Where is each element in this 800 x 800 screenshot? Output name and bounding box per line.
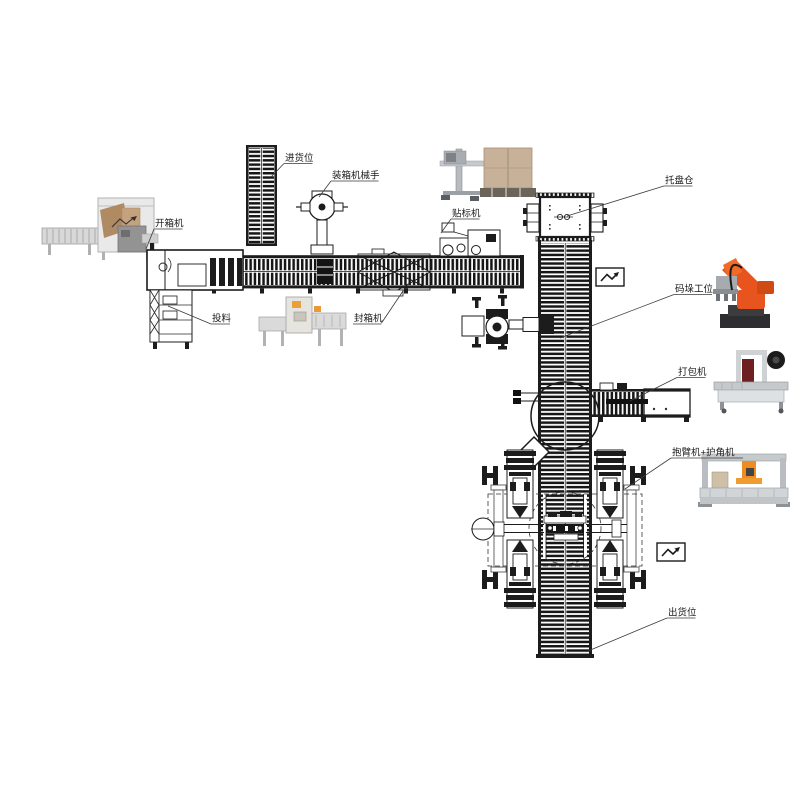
palletizing-robot-photo <box>713 258 774 328</box>
clamp-tower <box>594 450 626 518</box>
infeed-conveyor <box>246 145 277 246</box>
corner-bracket <box>630 466 646 485</box>
case-erector-photo <box>42 198 158 260</box>
packaging-line-diagram: 进货位 装箱机械手 开箱机 投料 封箱机 贴标机 托盘仓 码垛工位 打包机 <box>0 0 800 800</box>
pallet-magazine-drawing <box>523 193 607 241</box>
label-infeed: 进货位 <box>271 152 314 177</box>
label-case-sealer-text: 封箱机 <box>354 313 383 325</box>
corner-bracket <box>482 570 498 589</box>
label-outfeed: 出货位 <box>588 607 697 652</box>
flow-break-symbol <box>596 268 624 286</box>
case-erector-drawing <box>147 243 243 349</box>
label-packing-robot-text: 装箱机械手 <box>332 170 380 182</box>
diagram-canvas: 进货位 装箱机械手 开箱机 投料 封箱机 贴标机 托盘仓 码垛工位 打包机 <box>0 0 800 800</box>
corner-bracket <box>482 466 498 485</box>
flow-break-symbol <box>657 543 685 561</box>
case-sealer-photo <box>259 297 346 346</box>
labeler-drawing <box>440 223 500 256</box>
clamp-tower <box>504 450 536 518</box>
label-strapper-text: 打包机 <box>678 366 707 378</box>
label-clamp-corner-text: 抱臂机+护角机 <box>672 447 735 459</box>
corner-bracket <box>630 570 646 589</box>
label-infeed-text: 进货位 <box>285 152 314 164</box>
label-case-erector-text: 开箱机 <box>155 218 184 230</box>
label-feeding-text: 投料 <box>212 313 232 325</box>
clamp-tower <box>504 540 536 608</box>
gantry-strapper-photo <box>698 454 790 507</box>
label-palletizing-station-text: 码垛工位 <box>675 283 714 295</box>
labeler-photo <box>440 148 536 201</box>
label-outfeed-text: 出货位 <box>668 607 697 619</box>
clamp-tower <box>594 540 626 608</box>
label-labeler-text: 贴标机 <box>452 208 481 220</box>
label-pallet-magazine-text: 托盘仓 <box>665 175 694 187</box>
strapping-machine-photo <box>714 350 788 414</box>
strapper-conveyor-drawing <box>592 383 690 422</box>
